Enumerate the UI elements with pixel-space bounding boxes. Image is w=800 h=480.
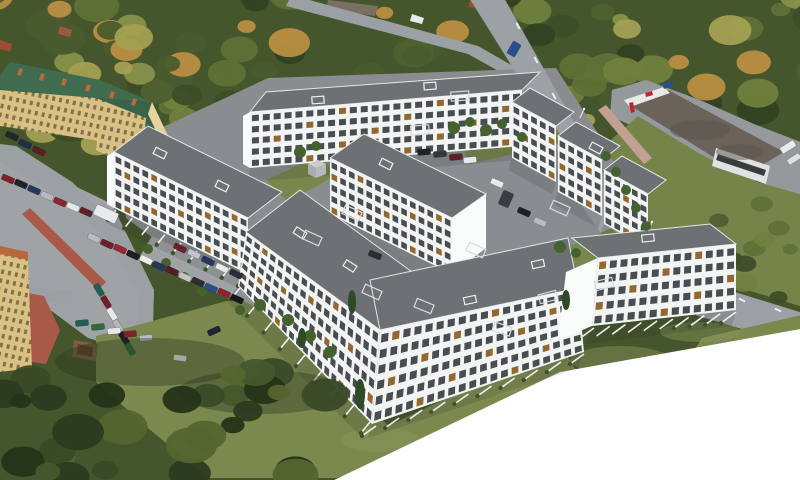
window	[502, 94, 509, 101]
hedge	[577, 337, 581, 341]
tree	[737, 50, 771, 74]
tree	[591, 4, 615, 21]
tree	[221, 37, 258, 63]
window	[716, 262, 723, 270]
hedge	[671, 326, 675, 330]
window	[610, 260, 617, 268]
window	[631, 258, 638, 266]
window	[502, 106, 509, 113]
window	[274, 124, 281, 131]
window	[727, 248, 734, 256]
window	[459, 120, 466, 127]
window	[695, 265, 702, 273]
tree	[52, 414, 104, 450]
window	[716, 289, 723, 297]
tree	[238, 20, 256, 33]
window	[426, 101, 433, 108]
window	[361, 106, 368, 113]
conifer	[562, 290, 570, 310]
hedge	[187, 259, 191, 263]
hedge	[429, 410, 433, 414]
window	[252, 126, 259, 133]
tree	[92, 461, 119, 480]
window	[674, 254, 681, 262]
yellow-facade-edge	[0, 254, 32, 372]
window	[317, 109, 324, 116]
window	[673, 280, 680, 288]
hedge	[452, 402, 456, 406]
window	[673, 267, 680, 275]
window	[683, 306, 690, 314]
window	[480, 96, 487, 103]
bush	[311, 141, 321, 151]
window	[350, 118, 357, 125]
window	[480, 141, 487, 148]
streetlight-head	[651, 221, 653, 223]
window	[717, 249, 724, 257]
tree	[11, 394, 31, 408]
hedge	[155, 243, 159, 247]
window	[652, 256, 659, 264]
hedge	[640, 330, 644, 334]
bush	[254, 299, 266, 311]
hedge	[261, 330, 265, 334]
window	[706, 264, 713, 272]
window	[662, 268, 669, 276]
window	[383, 104, 390, 111]
hedge	[220, 276, 224, 280]
bush	[480, 124, 492, 136]
window	[641, 270, 648, 278]
hedge	[383, 426, 387, 430]
roof-stain	[716, 144, 764, 160]
tree	[613, 19, 641, 38]
window	[684, 279, 691, 287]
window	[663, 255, 670, 263]
window	[594, 315, 602, 323]
tree	[163, 386, 202, 413]
window	[263, 147, 270, 154]
window	[274, 135, 281, 142]
window	[372, 116, 379, 123]
window	[274, 113, 281, 120]
bush	[621, 185, 631, 195]
car	[123, 330, 137, 337]
bush	[497, 119, 507, 129]
car	[433, 150, 447, 157]
window	[459, 109, 466, 116]
streetlight-head	[583, 108, 585, 110]
window	[295, 122, 302, 129]
bush	[571, 248, 581, 258]
hedge	[687, 324, 691, 328]
window	[383, 115, 390, 122]
hedge	[360, 434, 364, 438]
tree	[97, 409, 147, 444]
hedge	[498, 386, 502, 390]
hedge	[122, 226, 126, 230]
window	[393, 137, 400, 144]
tree	[252, 62, 277, 80]
aerial-render: Aerial 3D architectural visualization of…	[0, 0, 800, 480]
window	[306, 110, 313, 117]
window	[448, 144, 455, 151]
hedge	[568, 362, 572, 366]
tree	[30, 385, 67, 411]
window	[285, 134, 292, 141]
window	[502, 128, 509, 135]
aerial-render-svg	[0, 0, 800, 480]
window	[339, 141, 346, 148]
window	[502, 139, 509, 146]
window	[404, 102, 411, 109]
window	[672, 307, 679, 315]
window	[393, 103, 400, 110]
window	[393, 126, 400, 133]
window	[426, 134, 433, 141]
bush	[601, 151, 611, 161]
window	[491, 95, 498, 102]
window	[639, 297, 646, 305]
window	[652, 269, 659, 277]
window	[339, 108, 346, 115]
car	[91, 323, 105, 330]
window	[605, 314, 613, 322]
window	[706, 250, 713, 258]
car	[107, 327, 121, 334]
window	[306, 133, 313, 140]
window	[470, 131, 477, 138]
tree	[114, 62, 132, 75]
window	[415, 135, 422, 142]
window	[629, 285, 636, 293]
tree	[172, 84, 202, 105]
window	[470, 97, 477, 104]
window	[661, 295, 668, 303]
hedge	[608, 333, 612, 337]
window	[285, 157, 292, 164]
window	[470, 142, 477, 149]
window	[716, 302, 723, 310]
window	[727, 288, 734, 296]
window	[694, 305, 701, 313]
tree	[402, 45, 431, 65]
window	[619, 273, 626, 281]
window	[317, 132, 324, 139]
window	[599, 261, 606, 269]
tree	[768, 221, 790, 236]
window	[595, 302, 603, 310]
window	[285, 123, 292, 130]
window	[642, 257, 649, 265]
hedge	[545, 370, 549, 374]
bush	[517, 132, 527, 142]
bush	[282, 314, 294, 326]
window	[616, 313, 624, 321]
window	[470, 108, 477, 115]
tree	[47, 1, 71, 18]
window	[705, 277, 712, 285]
tree	[176, 32, 207, 54]
window	[607, 287, 615, 295]
window	[630, 271, 637, 279]
window	[339, 130, 346, 137]
window	[683, 292, 690, 300]
window	[350, 129, 357, 136]
window	[640, 284, 647, 292]
bush	[235, 305, 245, 315]
car	[417, 148, 431, 155]
bush	[324, 346, 336, 358]
hedge	[278, 347, 282, 351]
hedge	[294, 364, 298, 368]
window	[705, 303, 712, 311]
window	[306, 121, 313, 128]
tree	[376, 7, 393, 19]
window	[606, 301, 614, 309]
window	[404, 136, 411, 143]
window	[694, 278, 701, 286]
window	[263, 136, 270, 143]
bush	[465, 117, 475, 127]
window	[361, 117, 368, 124]
tree	[208, 60, 246, 87]
window	[393, 114, 400, 121]
tree	[184, 427, 211, 446]
window	[727, 261, 734, 269]
window	[650, 296, 657, 304]
window	[252, 137, 259, 144]
hedge	[719, 321, 723, 325]
bush	[448, 122, 460, 134]
window	[437, 100, 444, 107]
window	[317, 154, 324, 161]
window	[620, 259, 627, 267]
window	[491, 129, 498, 136]
window	[306, 155, 313, 162]
window	[274, 158, 281, 165]
window	[448, 110, 455, 117]
window	[651, 283, 658, 291]
tree	[669, 55, 689, 69]
window	[649, 309, 656, 317]
window	[684, 253, 691, 261]
tree	[269, 28, 310, 57]
window	[716, 276, 723, 284]
bush	[294, 146, 306, 158]
hedge	[624, 331, 628, 335]
tree	[754, 232, 775, 247]
window	[437, 144, 444, 151]
tree	[603, 57, 643, 85]
tree	[115, 24, 153, 51]
window	[295, 111, 302, 118]
window	[694, 291, 701, 299]
window	[628, 298, 635, 306]
hedge	[703, 323, 707, 327]
hedge	[203, 267, 207, 271]
window	[672, 294, 679, 302]
window	[437, 111, 444, 118]
window	[317, 121, 324, 128]
hedge	[245, 314, 249, 318]
tree	[268, 385, 290, 400]
hedge	[138, 234, 142, 238]
window	[285, 146, 292, 153]
conifer	[348, 290, 356, 314]
window	[263, 125, 270, 132]
bush	[641, 221, 651, 231]
window	[328, 142, 335, 149]
window	[627, 312, 635, 320]
window	[263, 114, 270, 121]
window	[350, 107, 357, 114]
window	[404, 114, 411, 121]
window	[383, 126, 390, 133]
tree	[769, 291, 787, 304]
car	[449, 153, 463, 160]
conifer	[298, 328, 306, 348]
window	[705, 290, 712, 298]
car	[75, 319, 89, 326]
window	[727, 301, 734, 309]
conifer	[355, 379, 365, 409]
window	[295, 134, 302, 141]
window	[415, 113, 422, 120]
window	[662, 281, 669, 289]
tree	[35, 463, 60, 480]
window	[404, 147, 411, 154]
window	[328, 108, 335, 115]
window	[274, 146, 281, 153]
window	[617, 300, 625, 308]
hedge	[171, 251, 175, 255]
car	[463, 156, 477, 163]
window	[684, 266, 691, 274]
window	[415, 101, 422, 108]
hedge	[656, 328, 660, 332]
window	[491, 106, 498, 113]
end-wall	[107, 152, 114, 208]
tree	[687, 74, 725, 101]
tree	[221, 366, 246, 384]
window	[437, 133, 444, 140]
window	[252, 159, 259, 166]
tree	[89, 382, 125, 407]
roof-stain	[670, 120, 730, 140]
hedge	[406, 418, 410, 422]
window	[372, 105, 379, 112]
window	[285, 112, 292, 119]
window	[339, 119, 346, 126]
tree	[737, 79, 778, 108]
window	[491, 140, 498, 147]
tree	[157, 56, 180, 72]
bush	[611, 167, 621, 177]
hedge	[593, 335, 597, 339]
window	[727, 275, 734, 283]
hedge	[343, 414, 347, 418]
tree	[709, 15, 752, 45]
bush	[631, 203, 641, 213]
window	[480, 107, 487, 114]
window	[459, 132, 466, 139]
hedge	[475, 394, 479, 398]
tree	[783, 244, 798, 255]
window	[437, 122, 444, 129]
window	[328, 120, 335, 127]
window	[426, 112, 433, 119]
tree	[302, 379, 349, 412]
bush	[554, 241, 566, 253]
hedge	[522, 378, 526, 382]
window	[638, 311, 645, 319]
window	[328, 131, 335, 138]
window	[618, 286, 625, 294]
window	[252, 148, 259, 155]
window	[252, 115, 259, 122]
end-wall	[243, 112, 250, 168]
window	[372, 127, 379, 134]
window	[459, 98, 466, 105]
window	[459, 143, 466, 150]
window	[263, 159, 270, 166]
bush	[143, 244, 153, 254]
tree	[751, 196, 773, 212]
window	[661, 308, 668, 316]
window	[695, 251, 702, 259]
